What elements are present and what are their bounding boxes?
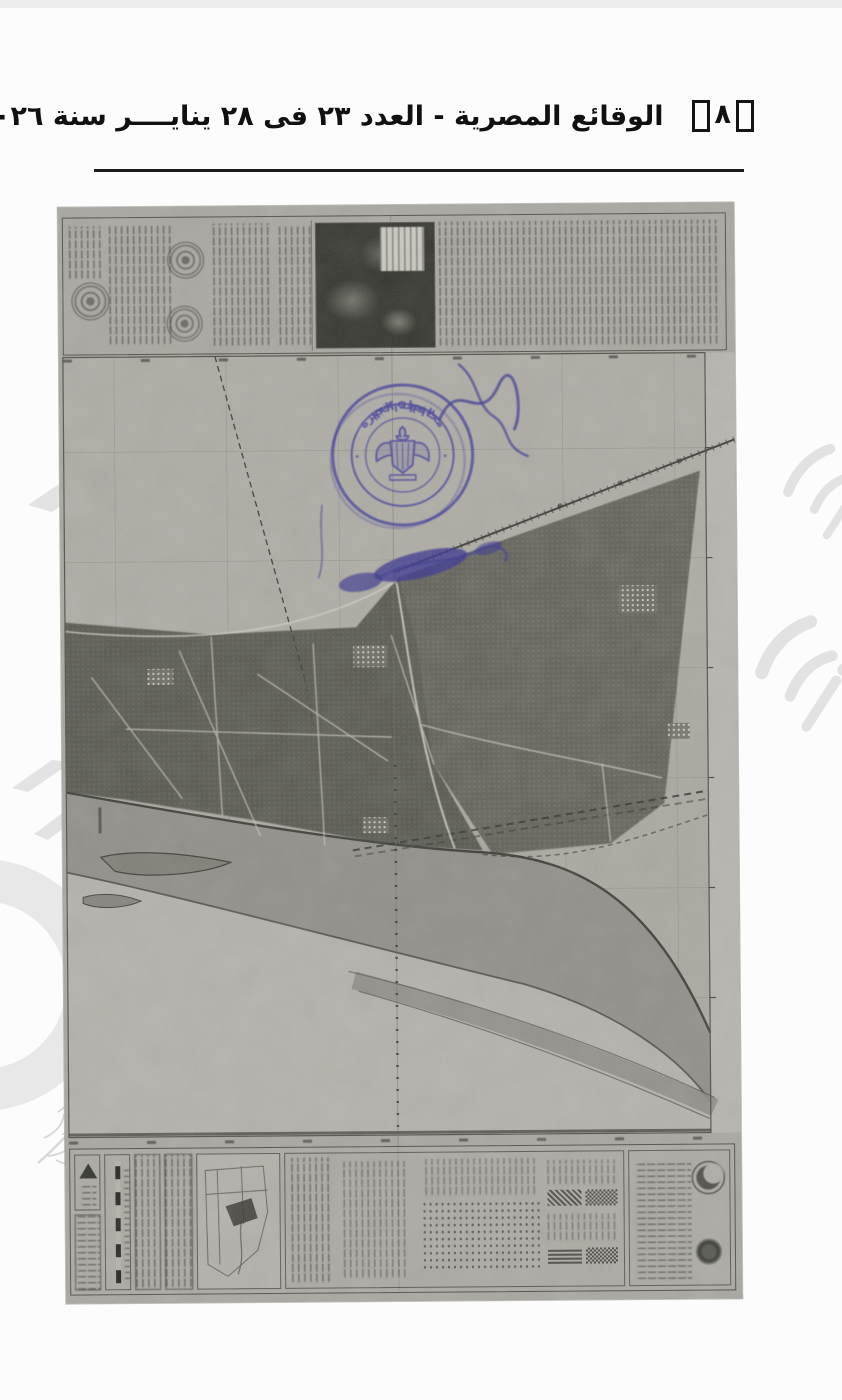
north-arrow-icon xyxy=(79,1163,97,1178)
stamp-smudge xyxy=(337,539,504,596)
map-legend-band xyxy=(69,1143,736,1295)
legend-entries-box xyxy=(284,1150,625,1289)
page-number-bracket-icon xyxy=(692,100,710,132)
north-arrow-box xyxy=(74,1154,100,1210)
legend-swatch xyxy=(548,1248,582,1264)
inset-highlight-area xyxy=(225,1198,257,1226)
legend-text-box xyxy=(134,1154,161,1290)
egypt-inset-map xyxy=(196,1153,281,1290)
page-number-bracket-icon xyxy=(736,100,754,132)
signature-scribble xyxy=(439,375,518,429)
crescent-logo-icon xyxy=(689,1156,727,1198)
scale-bar-box xyxy=(104,1154,131,1290)
gazette-header: ٨ الوقائع المصرية - العدد ٢٣ فى ٢٨ ينايـ… xyxy=(0,100,754,132)
gazette-title: الوقائع المصرية - العدد ٢٣ فى ٢٨ ينايـــ… xyxy=(0,101,664,132)
page-number: ٨ xyxy=(715,101,731,128)
legend-swatch xyxy=(547,1190,581,1206)
watermark-calligraphy-icon xyxy=(753,446,842,753)
legend-dotted-block xyxy=(422,1200,541,1273)
scanned-map-sheet: محافظة الجيزة الديوان العام ٭ ٭ xyxy=(58,202,743,1303)
legend-entry-column xyxy=(343,1161,410,1280)
sheet-number-box xyxy=(75,1214,102,1290)
authority-text xyxy=(635,1159,692,1279)
page-number-marker: ٨ xyxy=(692,100,754,132)
authority-box xyxy=(628,1149,731,1286)
scale-bar xyxy=(115,1161,121,1283)
legend-entry-column xyxy=(548,1213,618,1242)
round-logo-icon xyxy=(696,1238,722,1264)
legend-entry-column xyxy=(291,1158,332,1284)
legend-text-box xyxy=(164,1154,193,1290)
scale-bar-labels xyxy=(122,1165,130,1279)
legend-swatch xyxy=(586,1247,618,1263)
north-arrow-label xyxy=(80,1185,96,1205)
legend-entry-column xyxy=(547,1159,617,1186)
watermark-top-strip xyxy=(0,0,842,8)
legend-swatch xyxy=(585,1189,617,1205)
header-rule xyxy=(94,169,744,172)
legend-entry-column xyxy=(425,1158,535,1197)
